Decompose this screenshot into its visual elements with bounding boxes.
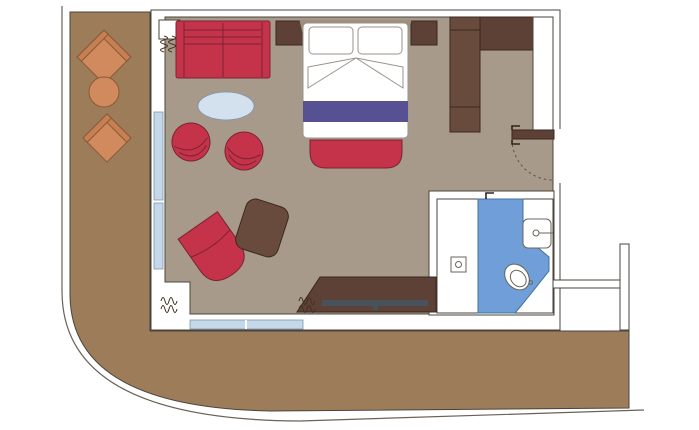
- sofa: [176, 21, 270, 78]
- bed-runner: [303, 101, 408, 122]
- floor-plan-drawing: [0, 0, 699, 430]
- pillow-right: [358, 27, 402, 54]
- window-left-lower: [154, 203, 163, 269]
- balcony-round-table: [89, 77, 119, 107]
- wardrobe-tall: [450, 17, 480, 132]
- desk: [297, 277, 436, 312]
- shower-drain: [451, 257, 466, 272]
- wardrobe-upper: [480, 17, 533, 50]
- television: [322, 300, 428, 306]
- nightstand-right: [411, 21, 437, 45]
- pillow-left: [309, 27, 353, 54]
- entry-door-opening: [555, 129, 567, 183]
- balcony-side-wall: [620, 244, 629, 330]
- balcony-divider-wall: [553, 280, 621, 288]
- floor-plan-canvas: [0, 0, 699, 430]
- double-bed: [300, 20, 411, 168]
- window-left-upper: [154, 112, 163, 200]
- door-leaf: [512, 130, 554, 139]
- coffee-table: [198, 92, 254, 120]
- desk-tv-unit: [297, 277, 436, 312]
- nightstand-left: [276, 21, 303, 45]
- entry-wall-pocket: [533, 17, 553, 131]
- foot-bench: [310, 140, 402, 168]
- tv-stand: [373, 306, 378, 310]
